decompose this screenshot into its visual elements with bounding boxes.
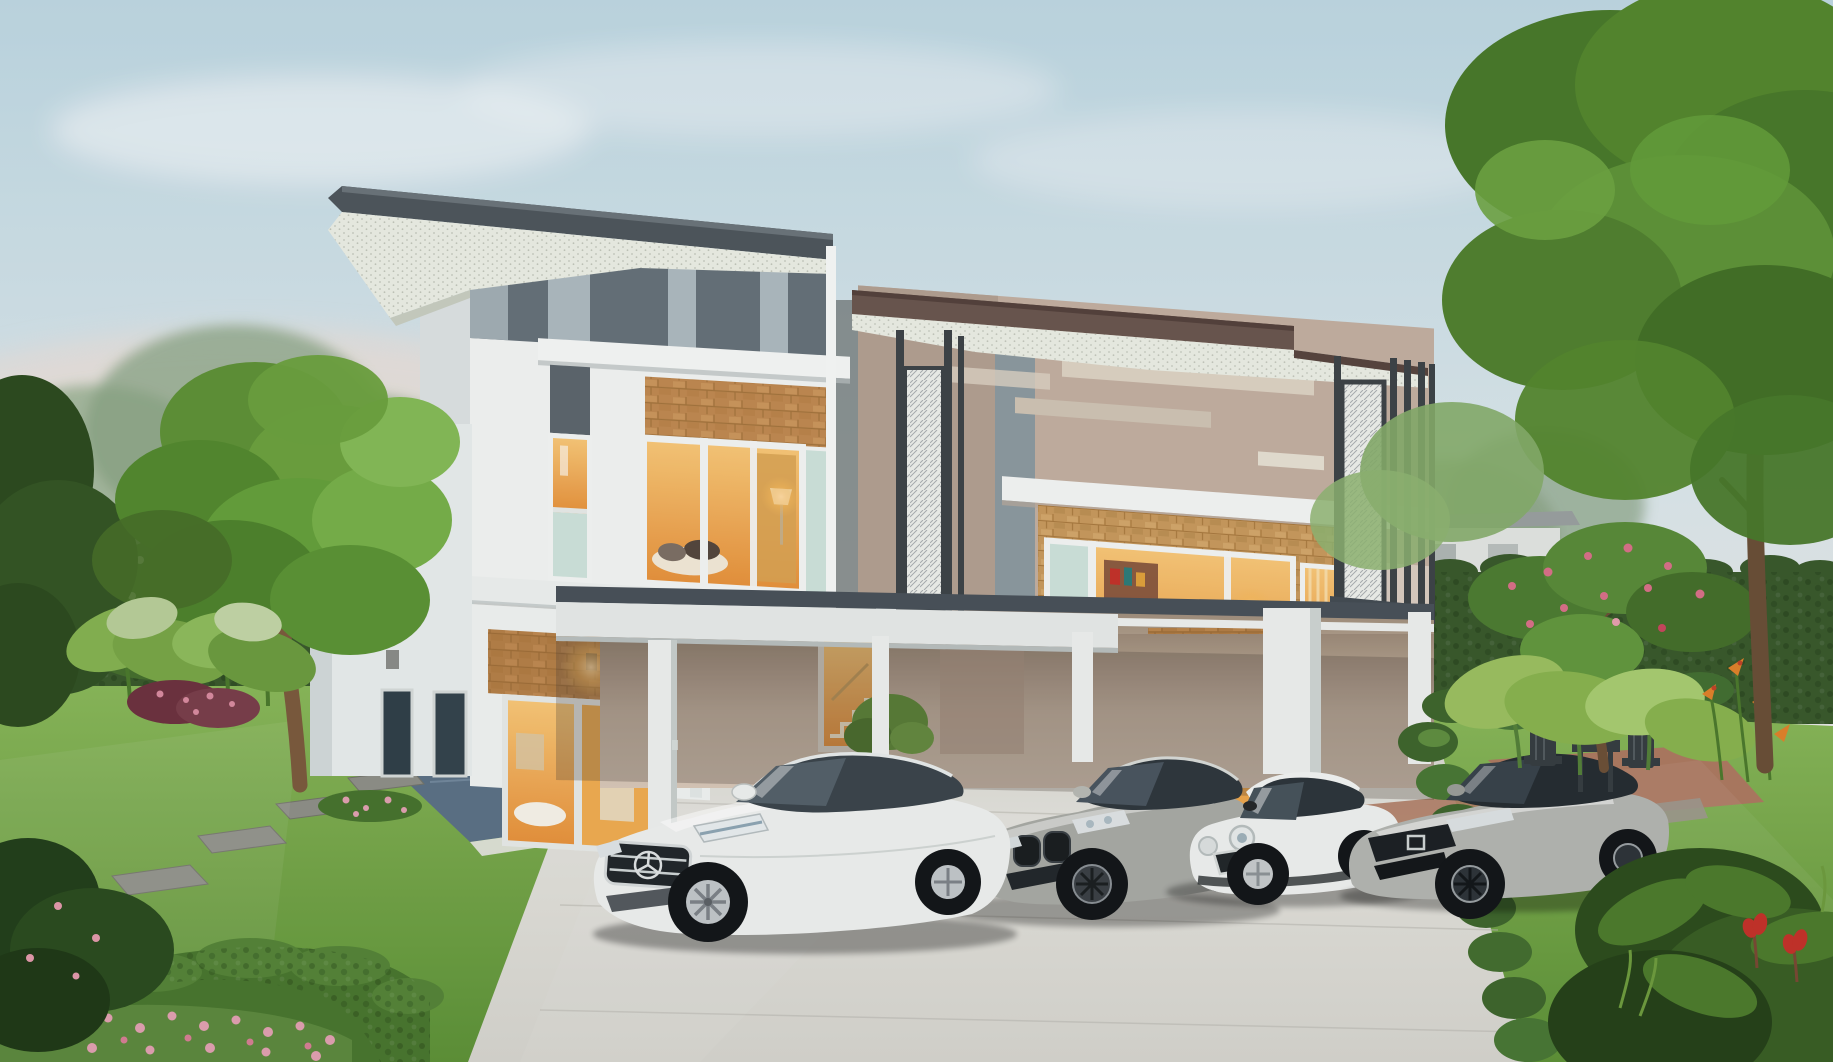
vignette bbox=[0, 0, 1833, 1062]
scene-canvas bbox=[0, 0, 1833, 1062]
architectural-render bbox=[0, 0, 1833, 1062]
